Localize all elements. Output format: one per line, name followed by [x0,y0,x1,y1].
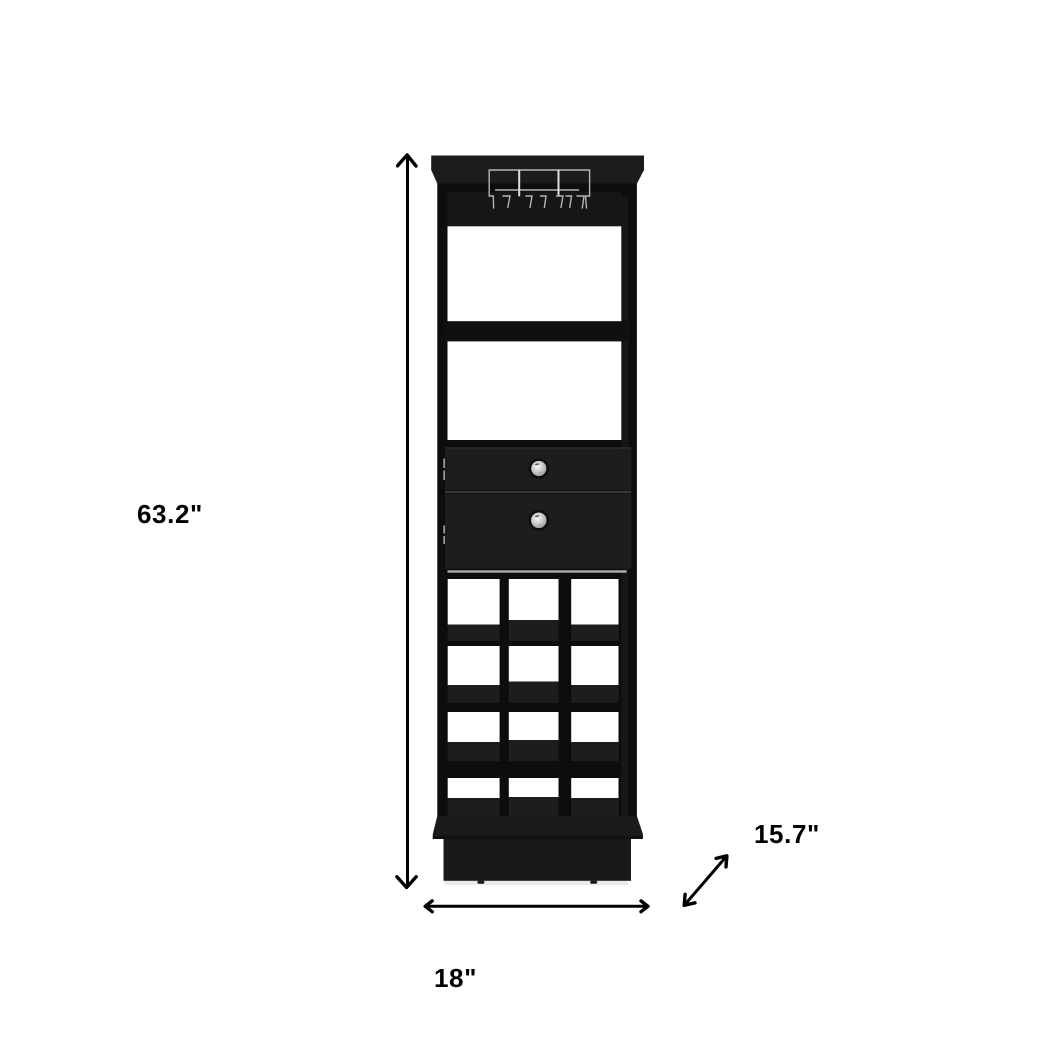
svg-text:18": 18" [434,963,477,993]
svg-text:15.7": 15.7" [754,819,820,849]
svg-text:63.2": 63.2" [137,499,203,529]
